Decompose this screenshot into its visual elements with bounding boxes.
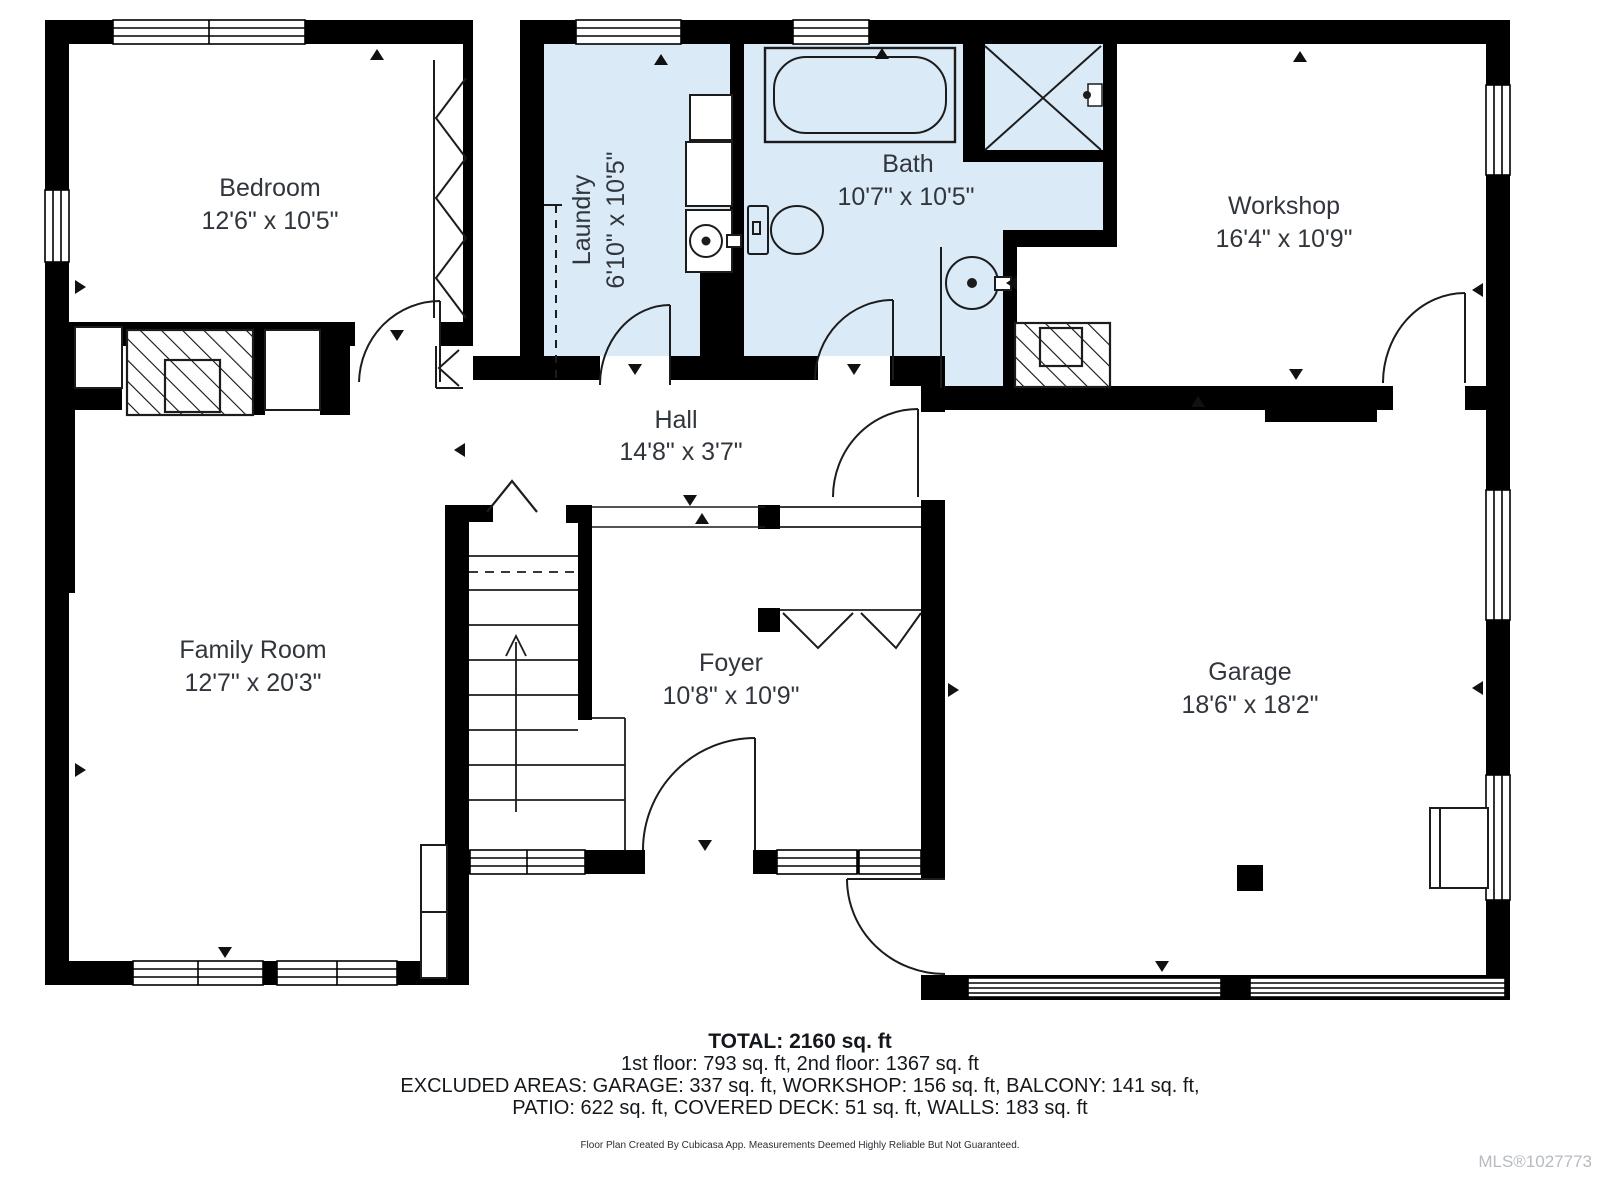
marker-hall-opening-down: [683, 495, 697, 506]
wall-laundry-bottom-l: [520, 356, 600, 380]
marker-garage-right: [1472, 681, 1483, 695]
area-summary: TOTAL: 2160 sq. ft 1st floor: 793 sq. ft…: [0, 1030, 1600, 1119]
chimney-side-box: [265, 330, 320, 410]
garage-door-2: [1250, 978, 1505, 997]
window-garage-right-2: [1486, 775, 1510, 900]
wall-closetbox-bottom: [75, 388, 122, 410]
front-door-gap: [645, 850, 753, 874]
workshop-dims: 16'4" x 10'9": [1215, 225, 1352, 253]
wall-chimney-strip-r: [320, 330, 350, 415]
wall-laundry-left: [520, 44, 544, 380]
excluded-areas-2: PATIO: 622 sq. ft, COVERED DECK: 51 sq. …: [0, 1097, 1600, 1119]
bedroom-label: Bedroom: [219, 174, 320, 202]
window-garage-right-1: [1486, 490, 1510, 620]
hall-garage-door-gap: [921, 412, 945, 500]
workshop-label: Workshop: [1228, 192, 1340, 220]
window-workshop-right: [1486, 85, 1510, 175]
marker-bedroom-top: [370, 49, 384, 60]
excluded-areas-1: EXCLUDED AREAS: GARAGE: 337 sq. ft, WORK…: [0, 1075, 1600, 1097]
foyer-dims: 10'8" x 10'9": [662, 682, 799, 710]
wall-closet-stub-top: [758, 505, 780, 529]
window-foyer-bottom-3: [859, 850, 921, 874]
side-door-gap: [921, 878, 945, 975]
front-door: [643, 738, 755, 850]
window-family-bottom-2: [277, 961, 397, 985]
foyer-label: Foyer: [699, 649, 763, 677]
marker-family-bottom: [218, 947, 239, 958]
bath-label: Bath: [882, 150, 933, 178]
wall-stairs-right: [578, 505, 592, 720]
window-bedroom-left: [45, 190, 69, 262]
garage-label: Garage: [1208, 658, 1291, 686]
wall-bath-bottom-l: [744, 356, 818, 380]
wall-stairs-cap-r: [566, 505, 592, 523]
marker-foyer-door: [698, 840, 712, 851]
laundry-label: Laundry: [568, 174, 596, 265]
marker-bedroom-left: [75, 280, 86, 294]
laundry-sink: [686, 210, 741, 272]
staircase: [469, 481, 625, 850]
stairs-top-chevron: [487, 481, 537, 512]
workshop-door: [1383, 293, 1465, 383]
wall-shower-left: [963, 44, 985, 162]
marker-garage-left: [948, 683, 959, 697]
wall-shower-right: [1103, 44, 1117, 247]
wall-chimney-strip-l: [253, 330, 265, 415]
fireplace-chimney: [127, 330, 253, 415]
hall-dims: 14'8" x 3'7": [619, 438, 742, 466]
window-seat: [421, 845, 447, 978]
marker-workshop-right: [1472, 283, 1483, 297]
garage-utility-box: [1430, 808, 1488, 888]
marker-family-left: [75, 763, 86, 777]
window-foyer-bottom-1: [470, 850, 585, 874]
mls-number: MLS®1027773: [1478, 1152, 1592, 1172]
floor-areas: 1st floor: 793 sq. ft, 2nd floor: 1367 s…: [0, 1053, 1600, 1075]
wall-left-thick: [45, 322, 75, 593]
foyer-closet: [780, 507, 921, 648]
bedroom-dims: 12'6" x 10'5": [201, 207, 338, 235]
left-closet-box: [75, 327, 122, 388]
wall-laundry-bottom-r: [670, 356, 744, 380]
washer-dryer: [686, 95, 732, 206]
closet-door-right: [861, 613, 921, 648]
wall-bedroom-right: [463, 44, 473, 346]
bedroom-closet: [434, 60, 466, 318]
wall-bath-step: [1003, 230, 1117, 247]
window-bath-top: [793, 20, 869, 44]
garage-door-1: [968, 978, 1221, 997]
wall-garage-top-bump: [1265, 410, 1377, 422]
wall-shower-bottom: [985, 150, 1103, 162]
wall-bath-bottom-r: [890, 356, 945, 386]
workshop-chimney: [1015, 323, 1110, 387]
hall-label: Hall: [654, 406, 697, 434]
garage-post: [1237, 865, 1263, 891]
floor-plan-page: Bedroom 12'6" x 10'5" Laundry 6'10" x 10…: [0, 0, 1600, 1200]
chase-gap: [473, 20, 520, 44]
window-family-bottom-1: [133, 961, 263, 985]
window-bedroom-top: [113, 20, 305, 44]
marker-workshop-bottom: [1289, 369, 1303, 380]
window-laundry-top: [576, 20, 681, 44]
workshop-door-gap: [1393, 386, 1465, 410]
marker-garage-bottom: [1155, 961, 1169, 972]
closet-door-left: [783, 613, 853, 648]
marker-workshop-top: [1293, 51, 1307, 62]
garage-dims: 18'6" x 18'2": [1181, 691, 1318, 719]
marker-hall-opening-up: [695, 513, 709, 524]
family-room-label: Family Room: [179, 636, 326, 664]
bath-dims: 10'7" x 10'5": [837, 183, 974, 211]
family-room-dims: 12'7" x 20'3": [184, 669, 321, 697]
marker-hall-west: [454, 443, 465, 457]
window-foyer-bottom-2: [777, 850, 857, 874]
wall-hall-top-west: [473, 356, 520, 380]
total-area: TOTAL: 2160 sq. ft: [0, 1030, 1600, 1053]
hall-foyer-opening: [592, 507, 765, 527]
wall-family-right: [445, 505, 469, 985]
hall-garage-door: [833, 409, 918, 497]
floor-plan-drawing: Bedroom 12'6" x 10'5" Laundry 6'10" x 10…: [0, 0, 1600, 1030]
wall-closet-stub-bottom: [758, 608, 780, 632]
disclaimer-text: Floor Plan Created By Cubicasa App. Meas…: [0, 1140, 1600, 1151]
laundry-dims: 6'10" x 10'5": [602, 151, 630, 288]
